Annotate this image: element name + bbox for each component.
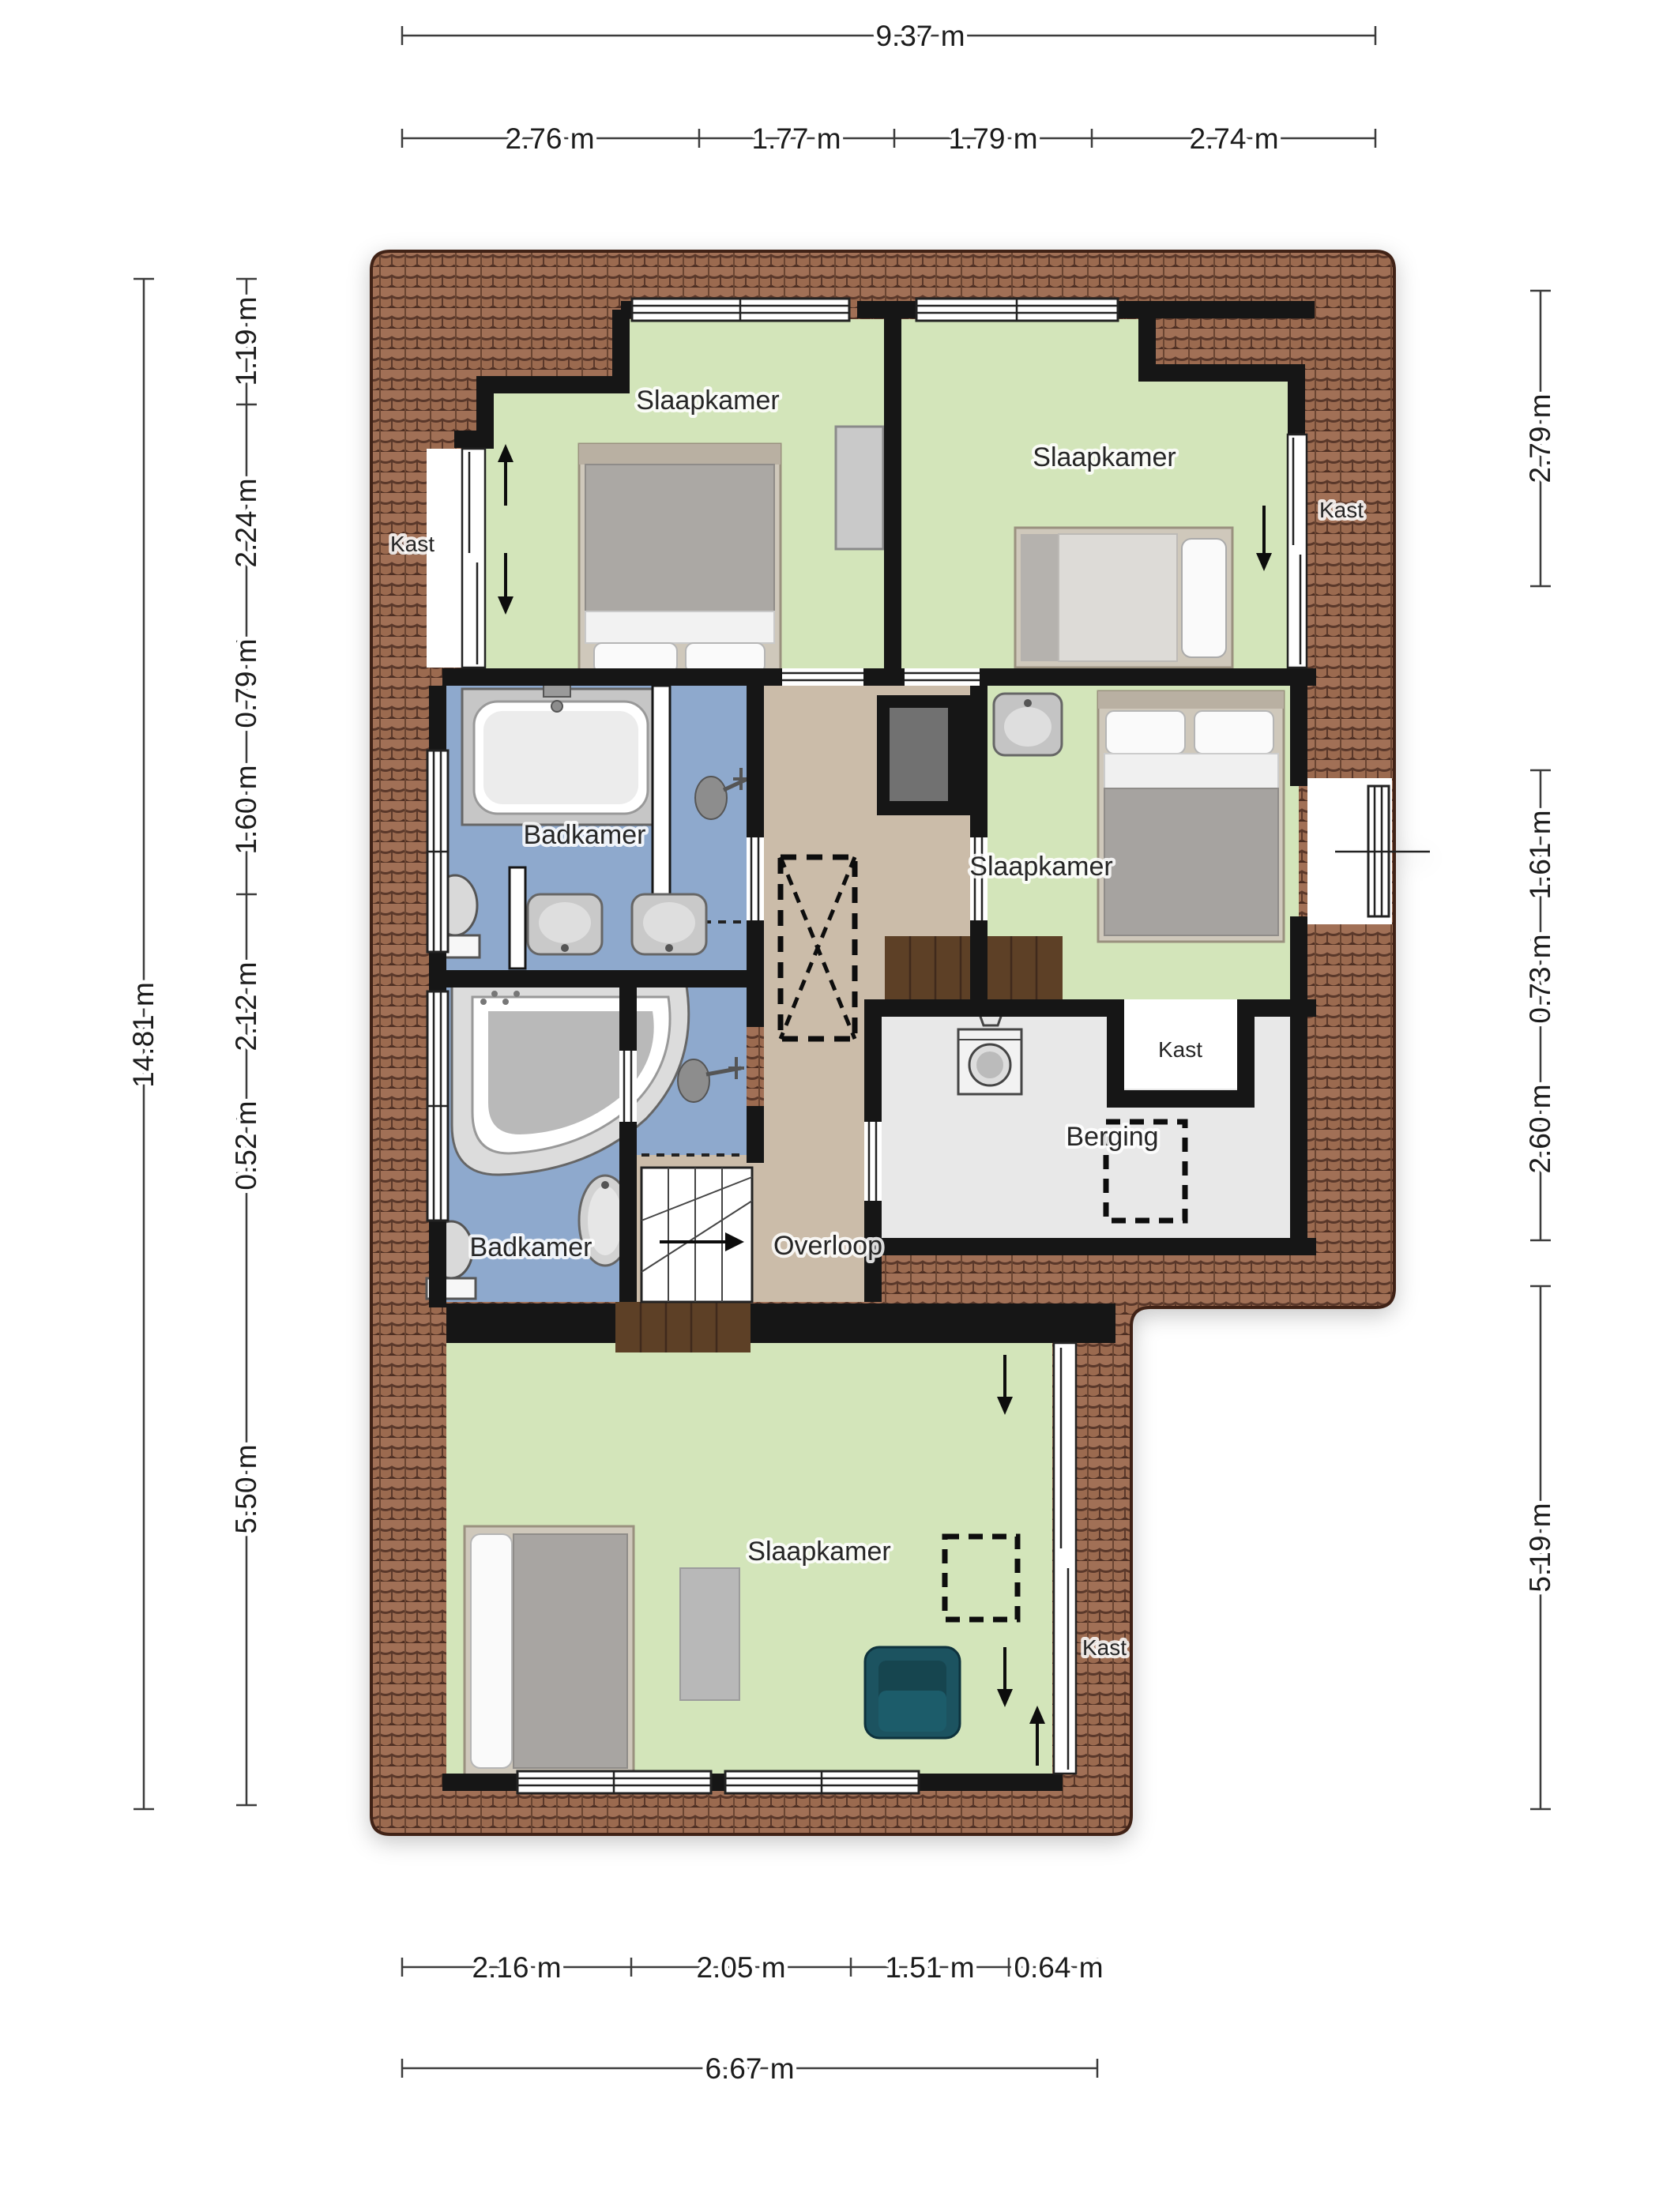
dimension-bottom-total: 6.67 m — [402, 2052, 1097, 2085]
svg-text:1.61 m: 1.61 m — [1524, 810, 1556, 899]
wood-threshold-bottom — [615, 1302, 750, 1352]
bed-bottom — [465, 1526, 634, 1776]
window-bottom-left — [517, 1771, 711, 1793]
svg-text:2.16 m: 2.16 m — [472, 1951, 561, 1984]
svg-text:2.60 m: 2.60 m — [1524, 1084, 1556, 1173]
door-bedroom-top-left — [782, 668, 863, 686]
door-storage — [864, 1122, 882, 1201]
dimension-bottom-segments: 2.16 m 2.05 m 1.51 m 0.64 m — [402, 1951, 1104, 1984]
bed-right — [1098, 691, 1284, 942]
wardrobe-top-left — [836, 427, 883, 549]
svg-text:2.79 m: 2.79 m — [1524, 393, 1556, 483]
building: Slaapkamer Slaapkamer Slaapkamer Slaapka… — [371, 251, 1430, 1834]
door-bathroom-top — [747, 837, 764, 920]
closet-door-top-right — [1288, 434, 1307, 668]
landing-label: Overloop — [773, 1231, 882, 1261]
dimension-left-segments: 1.19 m 2.24 m 0.79 m 1.60 m 2.12 m 0.52 … — [230, 279, 262, 1805]
svg-text:1.60 m: 1.60 m — [230, 765, 262, 854]
door-bathroom-bottom — [619, 1051, 637, 1122]
dimension-left-total: 14.81 m — [127, 279, 160, 1809]
sink-partition — [510, 867, 525, 969]
dim-label: 9.37 m — [875, 20, 965, 52]
bed-top-left — [579, 444, 781, 676]
bathroom-bottom-label: Badkamer — [470, 1232, 592, 1262]
svg-text:6.67 m: 6.67 m — [705, 2052, 794, 2085]
floorplan-canvas: Slaapkamer Slaapkamer Slaapkamer Slaapka… — [0, 0, 1659, 2212]
svg-text:2.24 m: 2.24 m — [230, 478, 262, 567]
closet-door-top-left — [462, 449, 485, 668]
svg-text:0.73 m: 0.73 m — [1524, 934, 1556, 1023]
door-bedroom-top-right — [905, 668, 980, 686]
armchair — [865, 1647, 960, 1738]
rug — [680, 1568, 739, 1700]
svg-text:1.79 m: 1.79 m — [948, 122, 1037, 155]
closet-top-right-label: Kast — [1319, 498, 1364, 522]
svg-text:0.52 m: 0.52 m — [230, 1100, 262, 1190]
window-top-right — [916, 299, 1118, 321]
shower-divider — [653, 686, 670, 897]
svg-text:5.19 m: 5.19 m — [1524, 1503, 1556, 1592]
svg-text:2.05 m: 2.05 m — [696, 1951, 785, 1984]
window-left-bathroom-bottom — [427, 991, 448, 1221]
bathtub — [462, 684, 660, 825]
svg-text:0.79 m: 0.79 m — [230, 638, 262, 728]
svg-text:5.50 m: 5.50 m — [230, 1444, 262, 1533]
stairs — [641, 1168, 752, 1302]
closet-middle-label: Kast — [1158, 1037, 1202, 1062]
duct-shaft — [877, 695, 970, 815]
bedroom-right-label: Slaapkamer — [969, 852, 1112, 882]
bedroom-top-right-label: Slaapkamer — [1033, 442, 1176, 472]
sink-right-bedroom — [994, 694, 1062, 755]
window-top-left — [632, 299, 849, 321]
dimension-right-segments: 2.79 m 1.61 m 0.73 m 2.60 m 5.19 m — [1524, 291, 1556, 1809]
bedroom-top-left-label: Slaapkamer — [636, 386, 779, 416]
svg-text:2.74 m: 2.74 m — [1189, 122, 1278, 155]
svg-text:2.76 m: 2.76 m — [505, 122, 594, 155]
svg-text:1.77 m: 1.77 m — [751, 122, 841, 155]
window-left-bathroom-top — [427, 750, 448, 952]
dimension-top-total: 9.37 m — [402, 20, 1375, 52]
svg-text:1.51 m: 1.51 m — [885, 1951, 974, 1984]
bathroom-top-label: Badkamer — [524, 820, 646, 850]
closet-top-left-label: Kast — [390, 532, 434, 556]
svg-text:1.19 m: 1.19 m — [230, 296, 262, 386]
closet-bottom-label: Kast — [1082, 1635, 1127, 1660]
bed-top-right — [1015, 528, 1232, 668]
svg-text:2.12 m: 2.12 m — [230, 961, 262, 1051]
svg-text:0.64 m: 0.64 m — [1014, 1951, 1103, 1984]
svg-text:14.81 m: 14.81 m — [127, 982, 160, 1088]
bedroom-bottom-label: Slaapkamer — [747, 1537, 890, 1567]
dimension-top-segments: 2.76 m 1.77 m 1.79 m 2.74 m — [402, 122, 1375, 155]
storage-label: Berging — [1066, 1122, 1158, 1152]
closet-door-bottom — [1054, 1343, 1076, 1774]
window-bottom-right — [725, 1771, 919, 1793]
